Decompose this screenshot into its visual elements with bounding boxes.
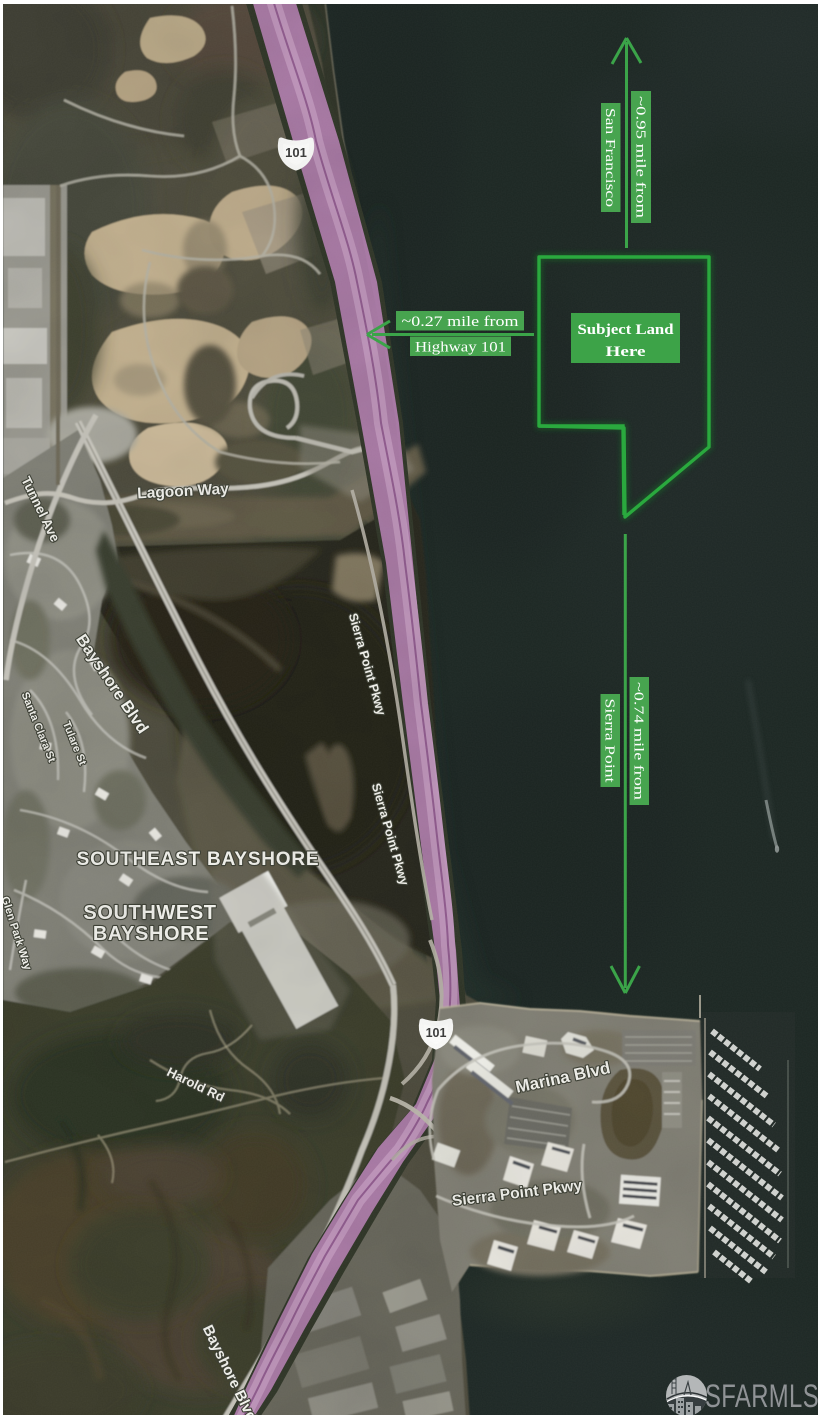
svg-text:San Francisco: San Francisco — [602, 108, 617, 207]
svg-text:~0.95 mile from: ~0.95 mile from — [632, 96, 647, 218]
svg-text:Highway 101: Highway 101 — [415, 340, 506, 356]
svg-text:~0.74 mile from: ~0.74 mile from — [631, 682, 646, 800]
svg-text:~0.27 mile from: ~0.27 mile from — [402, 314, 519, 330]
svg-text:Sierra Point: Sierra Point — [602, 699, 617, 783]
svg-text:Here: Here — [606, 344, 646, 360]
svg-text:SFARMLS: SFARMLS — [705, 1378, 819, 1414]
svg-text:Subject Land: Subject Land — [578, 322, 675, 338]
